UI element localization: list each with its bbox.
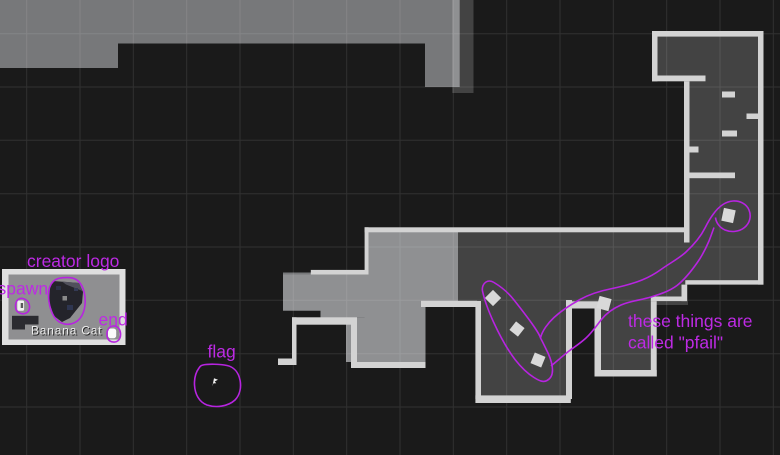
svg-text:creator logo: creator logo xyxy=(27,251,119,271)
svg-text:called "pfail": called "pfail" xyxy=(628,333,723,353)
svg-text:Banana Cat: Banana Cat xyxy=(31,324,102,338)
svg-text:these things are: these things are xyxy=(628,311,753,331)
svg-text:spawn: spawn xyxy=(0,279,48,299)
svg-text:flag: flag xyxy=(208,342,236,362)
